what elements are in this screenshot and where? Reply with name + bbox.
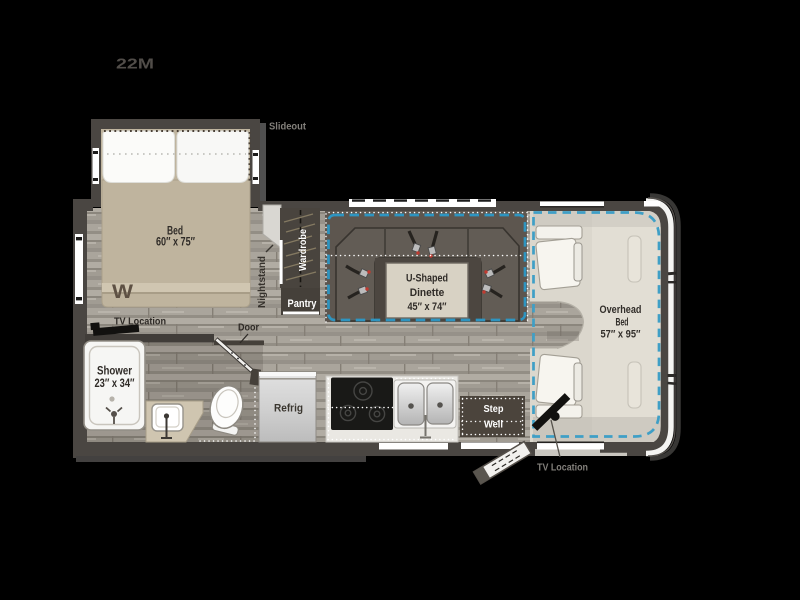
svg-text:Bed: Bed [167, 224, 183, 238]
svg-text:Bed: Bed [616, 317, 629, 329]
svg-text:W: W [112, 282, 133, 303]
svg-text:23″ x 34″: 23″ x 34″ [95, 378, 135, 390]
svg-text:57″ x 95″: 57″ x 95″ [601, 329, 642, 341]
svg-text:Well: Well [484, 419, 503, 431]
svg-text:Refrig: Refrig [274, 403, 303, 415]
svg-text:TV Location: TV Location [114, 316, 166, 328]
svg-text:Nightstand: Nightstand [256, 256, 268, 308]
svg-text:TV Location: TV Location [537, 462, 588, 474]
svg-text:Pantry: Pantry [288, 298, 318, 310]
svg-text:U-Shaped: U-Shaped [406, 273, 448, 285]
svg-text:Wardrobe: Wardrobe [297, 229, 309, 271]
svg-text:Step: Step [484, 403, 504, 415]
svg-text:Door: Door [238, 322, 259, 334]
svg-text:Dinette: Dinette [410, 287, 445, 299]
svg-text:22M: 22M [116, 56, 154, 73]
svg-text:60″ x 75″: 60″ x 75″ [156, 237, 195, 249]
svg-text:Overhead: Overhead [600, 304, 642, 316]
svg-text:45″ x 74″: 45″ x 74″ [408, 301, 448, 313]
svg-text:Slideout: Slideout [269, 121, 306, 133]
svg-text:Shower: Shower [97, 364, 132, 378]
